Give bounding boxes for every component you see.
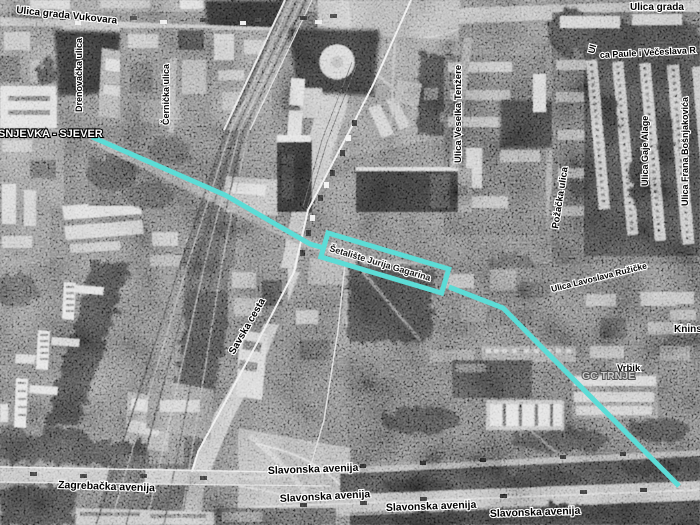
svg-text:Ulica Frana Bošnjakovića: Ulica Frana Bošnjakovića bbox=[680, 96, 690, 206]
svg-text:Ulica Gaje Alage: Ulica Gaje Alage bbox=[640, 116, 650, 186]
svg-text:Ulica Veselka Tenžere: Ulica Veselka Tenžere bbox=[453, 65, 464, 163]
svg-text:Ulica grada: Ulica grada bbox=[630, 2, 684, 13]
svg-text:Černička ulica: Černička ulica bbox=[160, 63, 171, 125]
svg-text:Kninska: Kninska bbox=[674, 324, 700, 335]
svg-text:SNJEVKA - SJEVER: SNJEVKA - SJEVER bbox=[0, 128, 103, 140]
svg-text:GC TRNJE: GC TRNJE bbox=[582, 370, 635, 382]
svg-text:Drenovačka ulica: Drenovačka ulica bbox=[74, 37, 84, 112]
